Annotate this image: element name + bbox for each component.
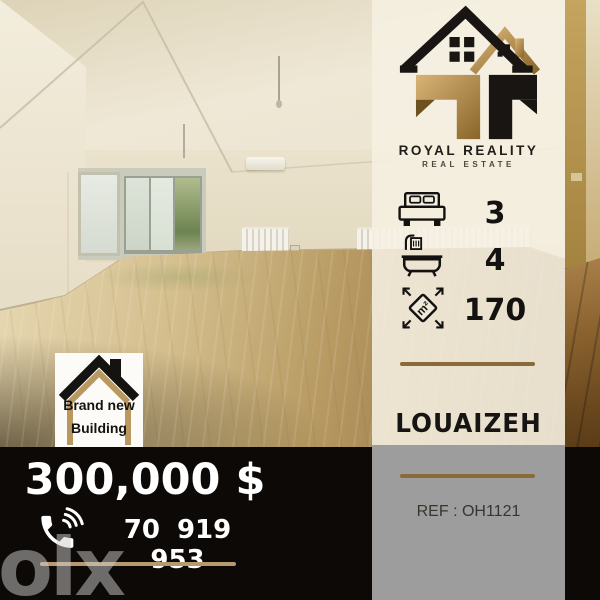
sliding-glass-door [124,176,202,254]
bathtub-shower-icon [400,231,444,279]
listing-flyer: ROYAL REALITY REAL ESTATE 3 4 m² 170 LOU… [0,0,600,600]
area-m2-diamond-icon: m² [400,285,446,331]
frosted-window [78,172,120,256]
badge-line2: Building [55,420,143,436]
agency-tagline: REAL ESTATE [372,160,565,169]
door-panel [151,178,173,250]
reference-number: REF : OH1121 [372,503,565,521]
door-panel-greenery [175,178,200,250]
location-name: LOUAIZEH [377,409,560,439]
twin-house-logo-icon [394,2,540,142]
area-value: 170 [455,293,535,328]
wood-floor [565,258,600,447]
bedrooms-count: 3 [455,196,535,231]
ac-unit [246,157,285,170]
pendant-bulb [276,100,282,108]
pendant-wire [278,56,280,102]
price: 300,000 $ [10,455,280,505]
bathrooms-count: 4 [455,243,535,278]
agency-name: ROYAL REALITY [372,143,565,158]
right-wall-pillar [565,0,586,268]
gold-divider [400,474,535,478]
right-wall [586,0,600,262]
window-wall [78,168,206,260]
pendant-wire [183,124,185,158]
badge-line1: Brand new [55,397,143,413]
bed-icon [398,191,446,229]
info-panel-gray [372,445,565,600]
olx-watermark: olx [0,528,123,600]
door-panel [126,178,149,250]
wall-outlet [570,172,583,182]
brand-new-badge: Brand new Building [55,353,143,447]
gold-divider [400,362,535,366]
